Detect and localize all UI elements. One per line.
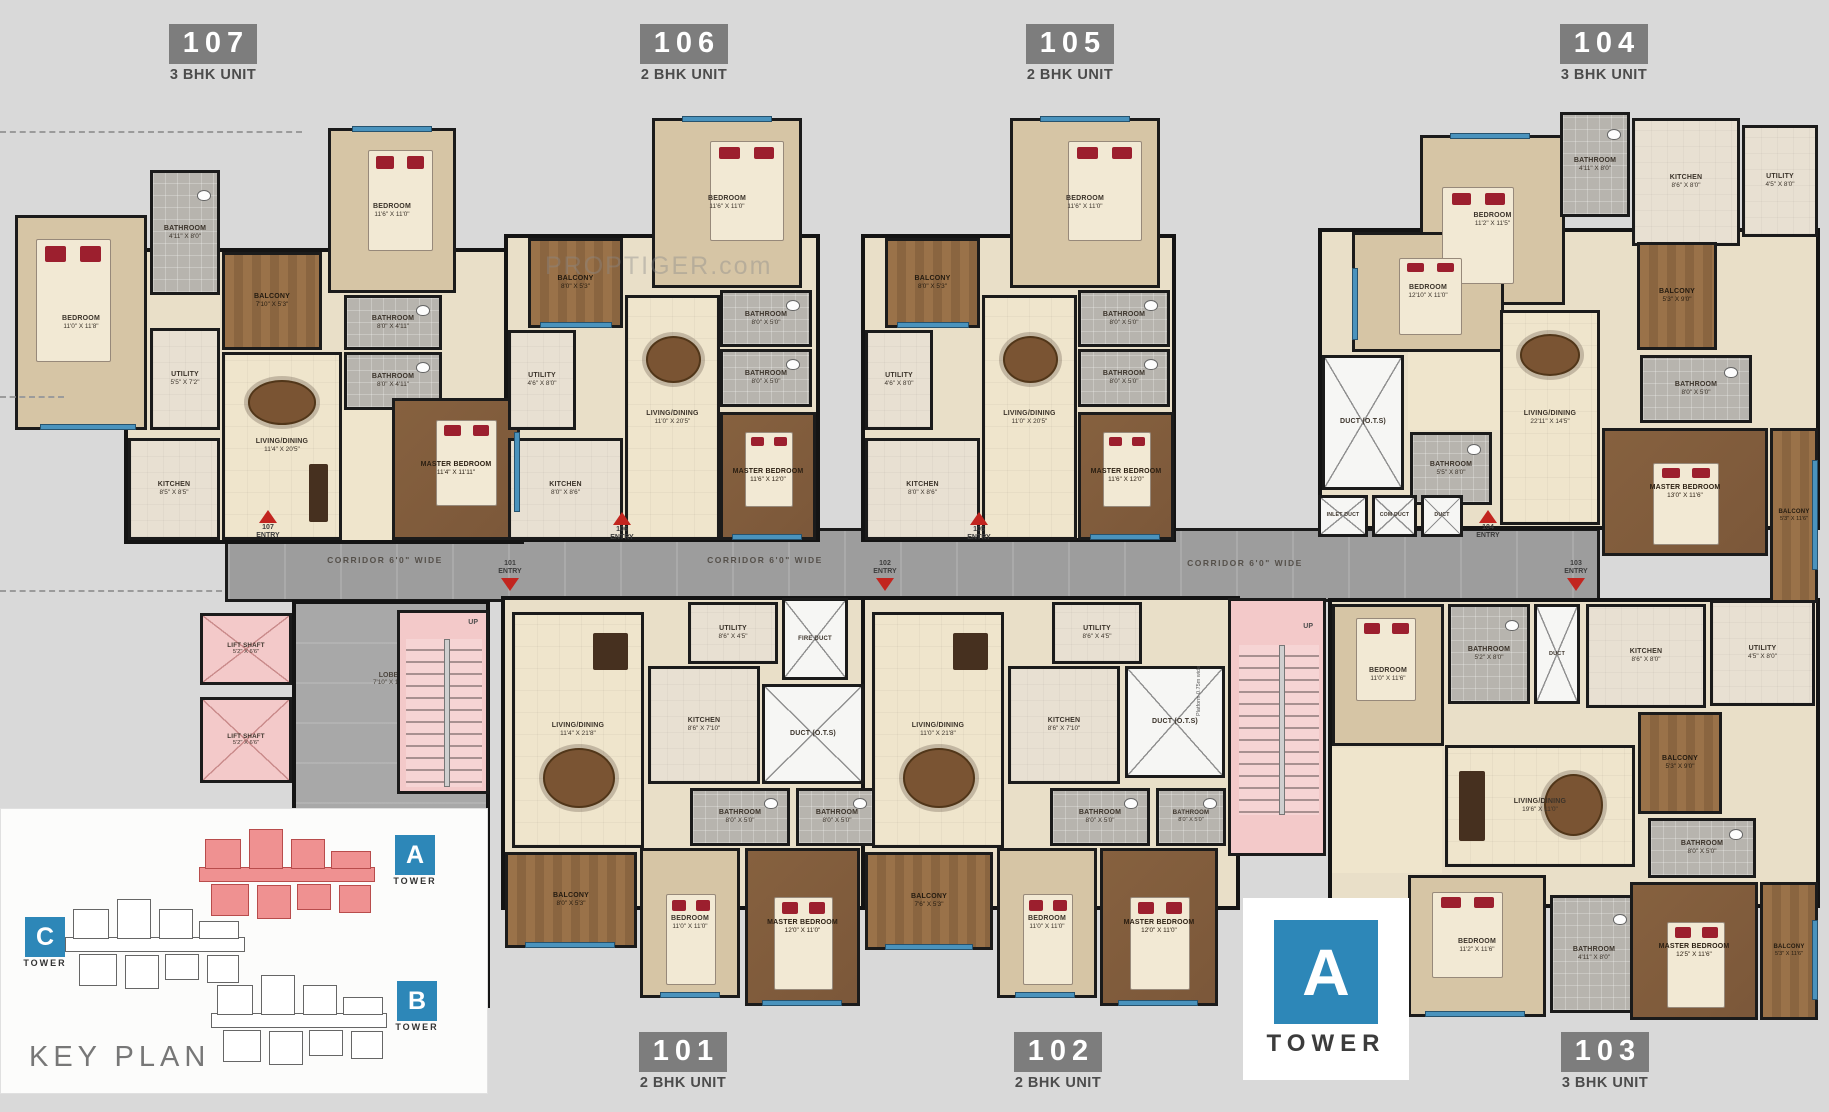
room-kitchen: KITCHEN8'5" X 8'5" bbox=[128, 438, 220, 540]
toilet bbox=[1613, 914, 1627, 925]
toilet bbox=[416, 305, 430, 316]
dining-table bbox=[903, 748, 975, 807]
window bbox=[1118, 1000, 1198, 1006]
room-master-bedroom: MASTER BEDROOM11'6" X 12'0" bbox=[1078, 412, 1174, 540]
reference-line bbox=[0, 396, 64, 398]
room-bathroom: BATHROOM4'11" X 8'0" bbox=[1560, 112, 1630, 217]
room-utility: UTILITY4'6" X 8'0" bbox=[508, 330, 576, 430]
window bbox=[732, 534, 802, 540]
room-bathroom: BATHROOM8'0" X 5'0" bbox=[796, 788, 878, 846]
room-utility: UTILITY4'5" X 8'0" bbox=[1710, 600, 1815, 706]
bed bbox=[666, 894, 717, 985]
toilet bbox=[1144, 359, 1158, 370]
window bbox=[897, 322, 969, 328]
dining-table bbox=[543, 748, 615, 807]
room-master-bedroom: MASTER BEDROOM12'5" X 11'6" bbox=[1630, 882, 1758, 1020]
room-living-dining: LIVING/DINING19'6" X 11'0" bbox=[1445, 745, 1635, 867]
room-living-dining: LIVING/DINING11'0" X 20'5" bbox=[625, 295, 720, 540]
dining-table bbox=[1003, 336, 1059, 383]
unit-label-102: 1022 BHK UNIT bbox=[993, 1032, 1123, 1091]
window bbox=[40, 424, 136, 430]
sofa bbox=[309, 464, 327, 522]
reference-line bbox=[0, 590, 222, 592]
room-bathroom: BATHROOM4'11" X 8'0" bbox=[1550, 895, 1638, 1013]
entry-101: 101ENTRY bbox=[482, 560, 538, 591]
entry-106: 106ENTRY bbox=[594, 512, 650, 543]
entry-arrow-icon bbox=[259, 510, 277, 523]
platform-label: Platform 0.75m wide bbox=[1196, 630, 1202, 716]
bed bbox=[774, 897, 833, 990]
room-bedroom: BEDROOM11'6" X 11'0" bbox=[328, 128, 456, 293]
entry-103: 103ENTRY bbox=[1548, 560, 1604, 591]
room-master-bedroom: MASTER BEDROOM11'4" X 11'11" bbox=[392, 398, 520, 540]
entry-105: 105ENTRY bbox=[951, 512, 1007, 543]
toilet bbox=[1505, 620, 1519, 631]
floor-passage bbox=[1408, 352, 1504, 430]
tower-word: TOWER bbox=[1243, 1030, 1409, 1058]
com-duct: COM DUCT bbox=[1372, 495, 1417, 537]
room-living-dining: LIVING/DINING22'11" X 14'5" bbox=[1500, 310, 1600, 525]
sofa bbox=[593, 633, 628, 670]
window bbox=[540, 322, 612, 328]
stairs-up-label: UP bbox=[1303, 623, 1313, 630]
room-kitchen: KITCHEN8'6" X 7'10" bbox=[648, 666, 760, 784]
key-plan-tower-b-shape bbox=[211, 973, 389, 1069]
toilet bbox=[1203, 798, 1217, 809]
toilet bbox=[1729, 829, 1743, 840]
unit-label-103: 1033 BHK UNIT bbox=[1540, 1032, 1670, 1091]
entry-104: 104ENTRY bbox=[1460, 510, 1516, 541]
tower-a-badge: A TOWER bbox=[1243, 898, 1409, 1080]
room-bathroom: BATHROOM8'0" X 5'0" bbox=[1078, 290, 1170, 347]
room-balcony: BALCONY7'6" X 5'3" bbox=[865, 852, 993, 950]
room-bedroom: BEDROOM11'6" X 11'0" bbox=[1010, 118, 1160, 288]
room-kitchen: KITCHEN8'6" X 8'0" bbox=[1632, 118, 1740, 246]
sofa bbox=[1459, 771, 1485, 841]
room-balcony: BALCONY8'0" X 5'3" bbox=[505, 852, 637, 948]
window bbox=[514, 432, 520, 512]
stair-steps bbox=[406, 639, 482, 787]
reference-line bbox=[0, 131, 302, 133]
room-bathroom: BATHROOM4'11" X 8'0" bbox=[150, 170, 220, 295]
dining-table bbox=[248, 380, 316, 424]
floor-passage bbox=[1332, 748, 1442, 873]
room-balcony: BALCONY5'3" X 9'0" bbox=[1637, 242, 1717, 350]
toilet bbox=[1607, 129, 1621, 140]
window bbox=[1090, 534, 1160, 540]
key-plan-title: KEY PLAN bbox=[29, 1041, 210, 1074]
room-living-dining: LIVING/DINING11'0" X 20'5" bbox=[982, 295, 1077, 540]
window bbox=[885, 944, 973, 950]
unit-label-107: 1073 BHK UNIT bbox=[148, 24, 278, 83]
bed bbox=[1653, 463, 1719, 546]
bed bbox=[710, 141, 784, 241]
room-master-bedroom: MASTER BEDROOM11'6" X 12'0" bbox=[720, 412, 816, 540]
window bbox=[1812, 920, 1818, 1000]
room-utility: UTILITY4'6" X 8'0" bbox=[865, 330, 933, 430]
duct: DUCT bbox=[1534, 604, 1580, 704]
unit-label-106: 1062 BHK UNIT bbox=[619, 24, 749, 83]
entry-arrow-icon bbox=[613, 512, 631, 525]
duct: DUCT bbox=[1421, 495, 1463, 537]
toilet bbox=[1467, 444, 1481, 455]
bed bbox=[1356, 618, 1416, 702]
toilet bbox=[1124, 798, 1138, 809]
floor-plan-canvas: CORRIDOR 6'0" WIDE CORRIDOR 6'0" WIDE CO… bbox=[0, 0, 1829, 1112]
bed bbox=[1068, 141, 1142, 241]
room-kitchen: KITCHEN8'6" X 8'0" bbox=[1586, 604, 1706, 708]
toilet bbox=[1724, 367, 1738, 378]
lift-shaft: LIFT SHAFT5'2" X 6'6" bbox=[200, 697, 292, 783]
entry-102: 102ENTRY bbox=[857, 560, 913, 591]
toilet bbox=[786, 359, 800, 370]
room-living-dining: LIVING/DINING11'0" X 21'8" bbox=[872, 612, 1004, 848]
room-bedroom: BEDROOM11'0" X 11'6" bbox=[1332, 604, 1444, 746]
window bbox=[352, 126, 432, 132]
bed bbox=[368, 150, 433, 251]
room-master-bedroom: MASTER BEDROOM13'0" X 11'6" bbox=[1602, 428, 1768, 556]
room-balcony: BALCONY5'3" X 11'6" bbox=[1770, 428, 1818, 603]
room-balcony: BALCONY5'3" X 9'0" bbox=[1638, 712, 1722, 814]
corridor-label: CORRIDOR 6'0" WIDE bbox=[1160, 558, 1330, 568]
unit-label-104: 1043 BHK UNIT bbox=[1539, 24, 1669, 83]
toilet bbox=[416, 362, 430, 373]
room-bathroom: BATHROOM5'2" X 8'0" bbox=[1448, 604, 1530, 704]
fire-duct: FIRE DUCT bbox=[782, 598, 848, 680]
bed bbox=[1130, 897, 1190, 990]
entry-arrow-icon bbox=[1567, 578, 1585, 591]
entry-arrow-icon bbox=[876, 578, 894, 591]
entry-arrow-icon bbox=[970, 512, 988, 525]
unit-label-105: 1052 BHK UNIT bbox=[1005, 24, 1135, 83]
entry-arrow-icon bbox=[501, 578, 519, 591]
room-bathroom: BATHROOM8'0" X 5'0" bbox=[720, 349, 812, 407]
room-master-bedroom: MASTER BEDROOM12'0" X 11'0" bbox=[1100, 848, 1218, 1006]
inlet-duct: INLET DUCT bbox=[1318, 495, 1368, 537]
room-bedroom: BEDROOM11'0" X 11'0" bbox=[997, 848, 1097, 998]
window bbox=[1425, 1011, 1525, 1017]
room-bathroom: BATHROOM8'0" X 5'0" bbox=[1050, 788, 1150, 846]
room-utility: UTILITY4'5" X 8'0" bbox=[1742, 125, 1818, 237]
toilet bbox=[1144, 300, 1158, 311]
window bbox=[1040, 116, 1130, 122]
toilet bbox=[197, 190, 211, 201]
window bbox=[682, 116, 772, 122]
window bbox=[1812, 460, 1818, 570]
floor-passage bbox=[340, 410, 394, 540]
key-plan-badge-a: A TOWER bbox=[385, 835, 445, 886]
room-bathroom: BATHROOM8'0" X 4'11" bbox=[344, 295, 442, 350]
staircase: UP bbox=[397, 610, 489, 794]
entry-107: 107ENTRY bbox=[240, 510, 296, 541]
room-bedroom: BEDROOM11'0" X 11'0" bbox=[640, 848, 740, 998]
room-master-bedroom: MASTER BEDROOM12'0" X 11'0" bbox=[745, 848, 860, 1006]
window bbox=[762, 1000, 842, 1006]
room-bathroom: BATHROOM8'0" X 5'0" bbox=[1078, 349, 1170, 407]
sofa bbox=[953, 633, 988, 670]
window bbox=[1015, 992, 1075, 998]
staircase: UP bbox=[1228, 598, 1326, 856]
duct: DUCT (O.T.S) bbox=[762, 684, 864, 784]
corridor-label: CORRIDOR 6'0" WIDE bbox=[680, 555, 850, 565]
unit-label-101: 1012 BHK UNIT bbox=[618, 1032, 748, 1091]
room-balcony: BALCONY7'10" X 5'3" bbox=[222, 252, 322, 350]
dining-table bbox=[646, 336, 702, 383]
room-balcony: BALCONY8'0" X 5'3" bbox=[885, 238, 980, 328]
room-kitchen: KITCHEN8'6" X 7'10" bbox=[1008, 666, 1120, 784]
corridor-label: CORRIDOR 6'0" WIDE bbox=[300, 555, 470, 565]
duct: DUCT (O.T.S) bbox=[1125, 666, 1225, 778]
room-bedroom: BEDROOM11'2" X 11'6" bbox=[1408, 875, 1546, 1017]
room-utility: UTILITY8'6" X 4'5" bbox=[688, 602, 778, 664]
room-bathroom: BATHROOM8'0" X 5'0" bbox=[1640, 355, 1752, 423]
bed bbox=[36, 239, 111, 362]
room-bathroom: BATHROOM8'0" X 5'0" bbox=[1648, 818, 1756, 878]
window bbox=[1450, 133, 1530, 139]
room-balcony: BALCONY5'3" X 11'6" bbox=[1760, 882, 1818, 1020]
room-bathroom: BATHROOM8'0" X 5'0" bbox=[1156, 788, 1226, 846]
bed bbox=[1023, 894, 1074, 985]
duct: DUCT (O.T.S) bbox=[1322, 355, 1404, 490]
toilet bbox=[853, 798, 867, 809]
dining-table bbox=[1520, 334, 1580, 376]
toilet bbox=[786, 300, 800, 311]
stair-steps bbox=[1239, 645, 1319, 815]
key-plan: KEY PLAN A TOWER C bbox=[0, 808, 488, 1094]
bed bbox=[1432, 892, 1503, 978]
room-utility: UTILITY8'6" X 4'5" bbox=[1052, 602, 1142, 664]
room-living-dining: LIVING/DINING11'4" X 21'8" bbox=[512, 612, 644, 848]
lift-shaft: LIFT SHAFT5'2" X 6'6" bbox=[200, 613, 292, 685]
window bbox=[525, 942, 615, 948]
room-utility: UTILITY5'5" X 7'2" bbox=[150, 328, 220, 430]
window bbox=[1352, 268, 1358, 340]
toilet bbox=[764, 798, 778, 809]
key-plan-badge-c: C TOWER bbox=[15, 917, 75, 968]
entry-arrow-icon bbox=[1479, 510, 1497, 523]
room-bathroom: BATHROOM8'0" X 5'0" bbox=[720, 290, 812, 347]
tower-letter: A bbox=[1274, 920, 1378, 1024]
key-plan-badge-b: B TOWER bbox=[387, 981, 447, 1032]
window bbox=[660, 992, 720, 998]
stairs-up-label: UP bbox=[468, 619, 478, 626]
room-bathroom: BATHROOM8'0" X 5'0" bbox=[690, 788, 790, 846]
bed bbox=[1667, 922, 1725, 1008]
